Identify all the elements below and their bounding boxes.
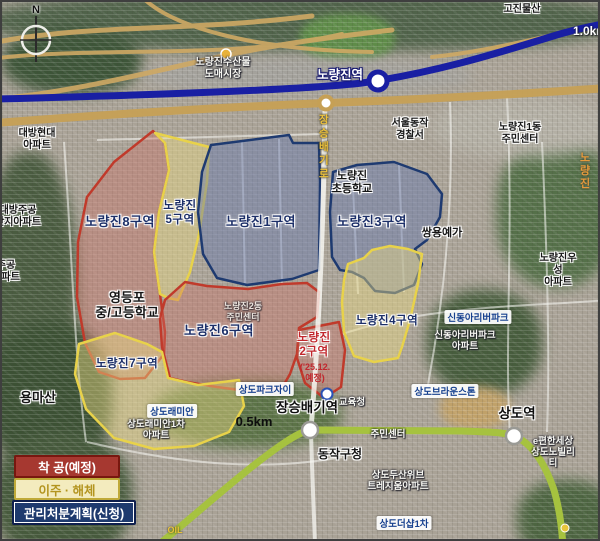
poi-dot-south	[561, 524, 569, 532]
subway-line-1	[2, 23, 600, 99]
subway-line-7	[152, 430, 563, 541]
district-noryangjin-2	[297, 322, 345, 398]
station-marker-sangdo	[506, 428, 522, 444]
subway-logo-icon	[322, 389, 333, 400]
legend-item-relocation-demolition: 이주 · 해체	[14, 478, 120, 500]
district-noryangjin-1	[198, 135, 320, 285]
road-south-of-station	[311, 431, 315, 541]
station-marker-noryangjin	[369, 72, 387, 90]
district-zones	[75, 131, 442, 449]
poi-dot-fish-market	[221, 49, 231, 59]
satellite-map: N 1.0km 0.5km 노량진역 장승배기역 상도역 노량진8구역 노량진 …	[0, 0, 600, 541]
legend-item-management-plan: 관리처분계획(신청)	[12, 500, 136, 525]
station-marker-jangseungbaegi	[302, 422, 318, 438]
district-noryangjin-6	[160, 282, 319, 392]
district-noryangjin-4	[342, 246, 422, 362]
legend-item-construction: 착 공(예정)	[14, 455, 120, 478]
station-marker-line9	[320, 97, 333, 110]
